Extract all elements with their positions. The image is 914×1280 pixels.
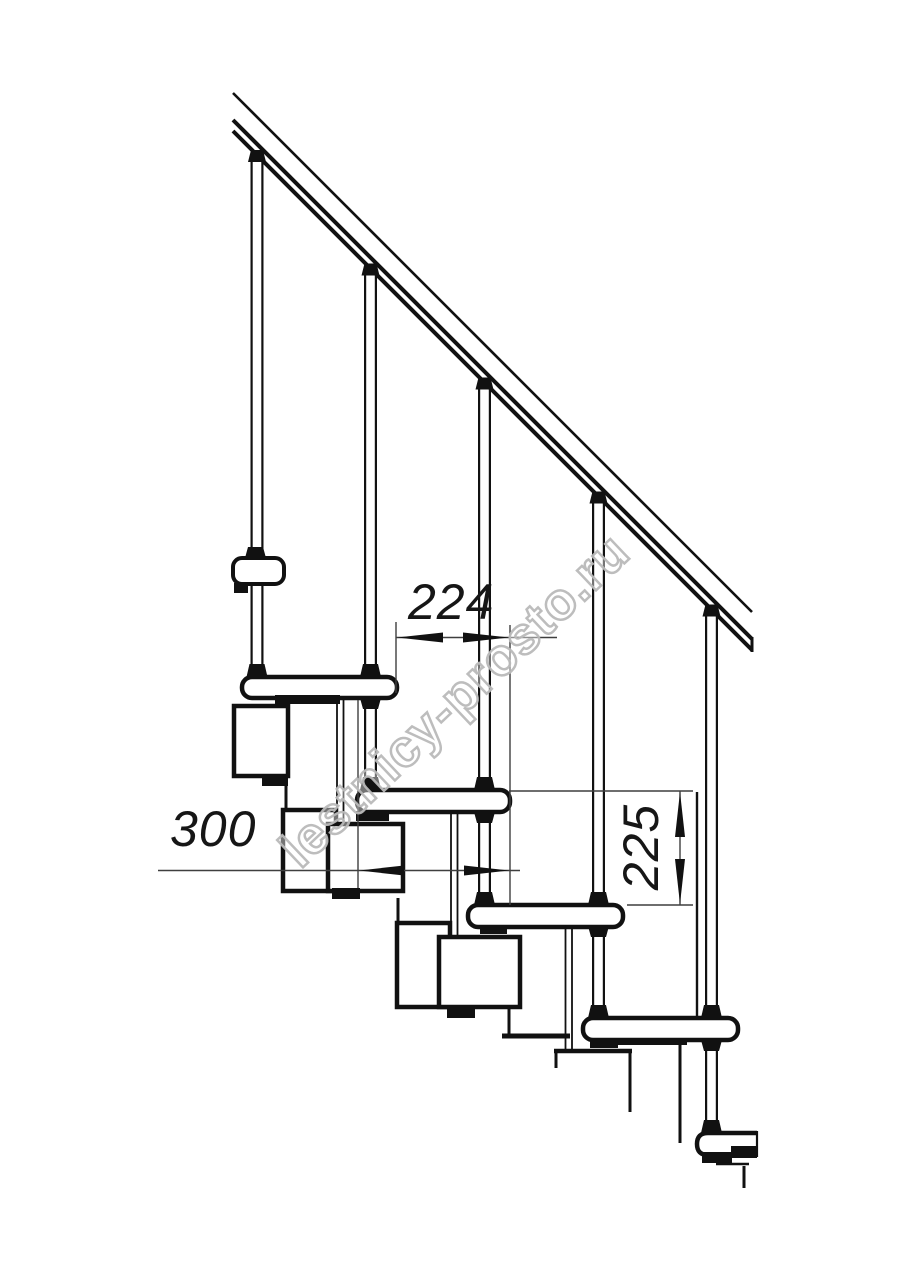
dim-label-run: 224 <box>408 577 494 627</box>
rail-collar-4 <box>590 492 608 504</box>
module-hanger-1 <box>262 775 288 786</box>
plate-5b <box>731 1146 757 1158</box>
staircase-drawing: lestnicy-prosto.ru 224 300 225 <box>0 0 914 1280</box>
tread-collar-5a <box>701 1120 722 1133</box>
dim225-arrow-up <box>675 792 685 837</box>
plate-1 <box>275 695 340 704</box>
tread-collar-2b <box>474 777 495 790</box>
handrail-band-lower <box>233 131 752 650</box>
tread-3 <box>468 905 623 927</box>
dim224-arrow-left <box>397 633 443 643</box>
tread-collar-3b <box>588 892 609 905</box>
upper-flight-tread-end <box>233 547 284 593</box>
staircase-line-art <box>0 0 914 1280</box>
support-pipe-3 <box>593 936 604 1006</box>
plate-4 <box>590 1038 618 1048</box>
handrail <box>233 93 752 652</box>
under-collar-3 <box>588 926 609 937</box>
bracket-lug <box>234 583 248 593</box>
rail-collar-3 <box>476 378 494 390</box>
dim225-arrow-down <box>675 859 685 904</box>
baluster-5 <box>706 616 717 1007</box>
handrail-band-upper <box>233 120 752 639</box>
module-hanger-3 <box>447 1006 475 1018</box>
dim-label-riser: 225 <box>616 787 666 907</box>
tread-collar-1b <box>360 664 381 677</box>
support-pipe-4 <box>706 1050 717 1122</box>
tread-4 <box>583 1018 738 1040</box>
tread-collar-4b <box>701 1005 722 1018</box>
plate-4b <box>617 1039 687 1045</box>
under-collar-4 <box>701 1040 722 1051</box>
module-hanger-2 <box>332 888 360 899</box>
tread-collar-3a <box>474 892 495 905</box>
support-pipe-2 <box>479 822 490 893</box>
rail-collar-5 <box>703 605 721 617</box>
module-box-1 <box>234 706 288 776</box>
under-collar-1 <box>360 698 381 709</box>
baluster-2 <box>365 274 376 666</box>
tread-collar-4a <box>588 1005 609 1018</box>
module-box-3 <box>439 937 520 1007</box>
tread-1 <box>242 677 397 698</box>
plate-3 <box>480 925 507 934</box>
dim-label-depth: 300 <box>170 804 256 854</box>
tread-collar-1a <box>247 664 268 677</box>
bracket-body <box>233 558 284 584</box>
rail-collar-1 <box>248 150 266 162</box>
dim300-arrow-right <box>464 866 509 876</box>
under-collar-2 <box>474 812 495 823</box>
bottom-break-lines <box>716 1164 749 1188</box>
rail-collar-2 <box>362 264 380 276</box>
plate-5 <box>702 1152 732 1163</box>
baluster-1 <box>252 160 263 666</box>
